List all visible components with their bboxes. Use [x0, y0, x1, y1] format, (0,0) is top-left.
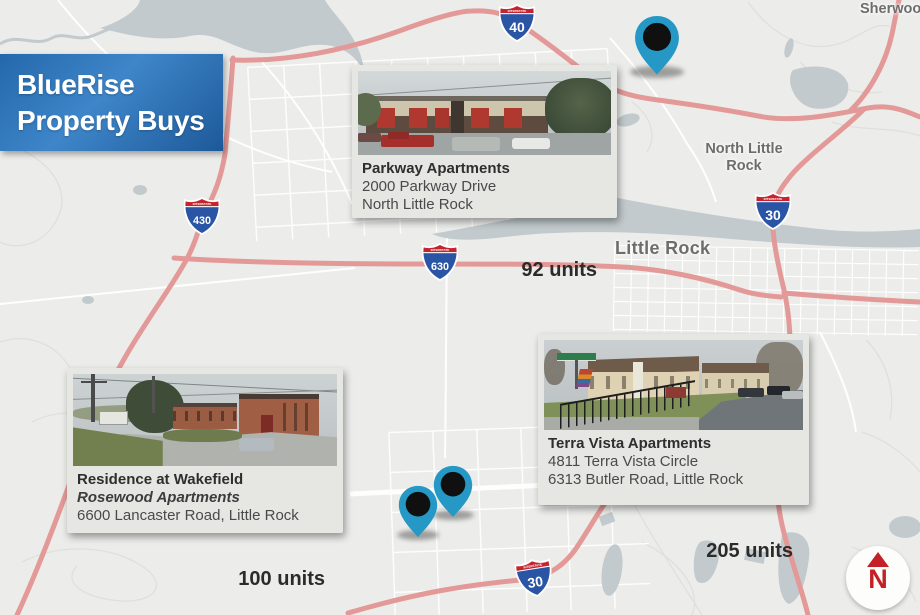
property-address: 2000 Parkway Drive: [362, 178, 607, 196]
svg-text:INTERSTATE: INTERSTATE: [764, 197, 783, 201]
interstate-shield-430: INTERSTATE 430: [184, 197, 220, 240]
property-address: 6600 Lancaster Road, Little Rock: [77, 507, 333, 525]
city-label-line: North Little: [705, 141, 782, 157]
photo-car-silver: [782, 391, 803, 399]
photo-utility-pole: [152, 376, 155, 413]
svg-text:INTERSTATE: INTERSTATE: [193, 202, 212, 206]
property-photo-wakefield: [73, 374, 337, 466]
city-label-sherwood: Sherwood: [860, 1, 920, 17]
city-label-north-little-rock: North Little Rock: [692, 141, 796, 175]
svg-text:INTERSTATE: INTERSTATE: [508, 9, 527, 13]
photo-balcony: [471, 108, 489, 128]
property-name: Residence at Wakefield: [77, 471, 333, 489]
map-pin-parkway[interactable]: [633, 15, 681, 83]
interstate-shield-630: INTERSTATE 630: [422, 243, 458, 286]
photo-crossarm: [81, 381, 107, 383]
photo-car-dark: [358, 133, 381, 141]
photo-building: [366, 96, 548, 135]
property-address: 6313 Butler Road, Little Rock: [548, 471, 799, 489]
svg-text:INTERSTATE: INTERSTATE: [431, 248, 450, 252]
photo-roof: [173, 403, 236, 406]
title-banner: BlueRise Property Buys: [0, 54, 223, 151]
property-card-parkway: Parkway Apartments 2000 Parkway Drive No…: [352, 65, 617, 218]
interstate-shield-30-south: INTERSTATE 30: [514, 556, 556, 604]
interstate-shield-30-north: INTERSTATE 30: [755, 192, 791, 235]
interstate-shield-40: INTERSTATE 40: [499, 4, 535, 47]
photo-roof: [239, 394, 318, 399]
photo-car-red-cab: [388, 132, 408, 139]
property-card-wakefield: Residence at Wakefield Rosewood Apartmen…: [67, 368, 343, 533]
photo-balcony: [504, 108, 522, 128]
property-city: North Little Rock: [362, 196, 607, 214]
photo-building: [173, 403, 236, 429]
property-name: Parkway Apartments: [362, 160, 607, 178]
photo-windows: [283, 403, 315, 431]
photo-balcony: [409, 108, 427, 128]
property-units: 100 units: [238, 568, 325, 591]
property-units: 92 units: [521, 259, 597, 282]
photo-windows: [705, 379, 767, 389]
photo-balcony: [435, 108, 450, 128]
photo-car-dark: [738, 388, 764, 397]
svg-text:30: 30: [765, 207, 781, 223]
map-pin-wakefield[interactable]: [397, 485, 439, 545]
property-alt-name: Rosewood Apartments: [77, 489, 333, 507]
banner-title-line2: Property Buys: [17, 103, 223, 139]
banner-title-line1: BlueRise: [17, 67, 223, 103]
city-label-little-rock: Little Rock: [615, 238, 710, 259]
photo-windows: [173, 411, 236, 421]
svg-text:30: 30: [526, 573, 544, 591]
map-infographic: Sherwood North Little Rock Little Rock I…: [0, 0, 920, 615]
photo-sign-white: [99, 411, 127, 425]
property-name: Terra Vista Apartments: [548, 435, 799, 453]
property-card-terra-vista: Terra Vista Apartments 4811 Terra Vista …: [538, 334, 809, 505]
property-photo-parkway: [358, 71, 611, 155]
north-compass: N: [846, 546, 910, 610]
photo-tree: [545, 78, 611, 140]
photo-stairwell: [451, 101, 464, 135]
city-label-line: Rock: [726, 158, 761, 174]
north-letter: N: [868, 566, 888, 592]
photo-car-white: [512, 138, 550, 149]
property-units: 205 units: [706, 540, 793, 563]
photo-car-suv: [452, 137, 500, 151]
svg-text:430: 430: [193, 215, 211, 227]
photo-grass-island: [163, 429, 242, 442]
photo-sign-red: [666, 387, 687, 398]
property-address: 4811 Terra Vista Circle: [548, 453, 799, 471]
property-photo-terra-vista: [544, 340, 803, 430]
svg-text:40: 40: [509, 19, 525, 35]
photo-car-silver: [239, 438, 273, 451]
svg-text:630: 630: [431, 261, 449, 273]
